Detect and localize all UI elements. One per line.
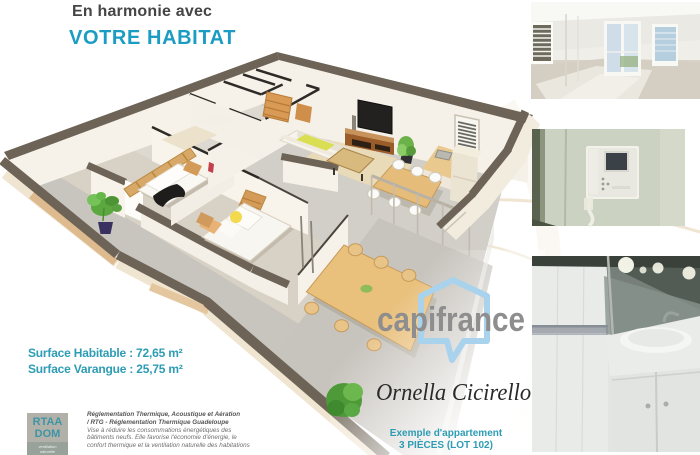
svg-text:capifrance: capifrance	[377, 300, 525, 338]
